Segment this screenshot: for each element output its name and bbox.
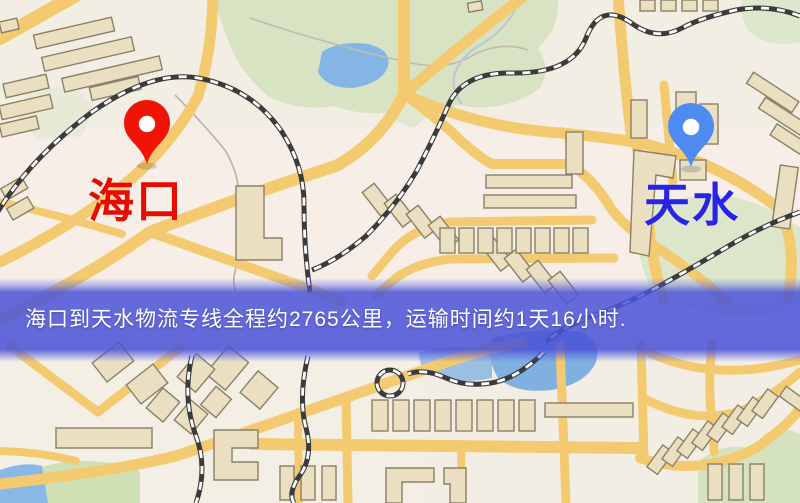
origin-city-label: 海口 xyxy=(88,178,184,224)
map-screenshot: 海口 天水 海口到天水物流专线全程约2765公里，运输时间约1天16小时. xyxy=(0,0,800,503)
route-info-text: 海口到天水物流专线全程约2765公里，运输时间约1天16小时. xyxy=(25,303,790,333)
route-info-banner: 海口到天水物流专线全程约2765公里，运输时间约1天16小时. xyxy=(0,278,800,362)
map-canvas xyxy=(0,0,800,503)
destination-city-label: 天水 xyxy=(644,182,740,228)
